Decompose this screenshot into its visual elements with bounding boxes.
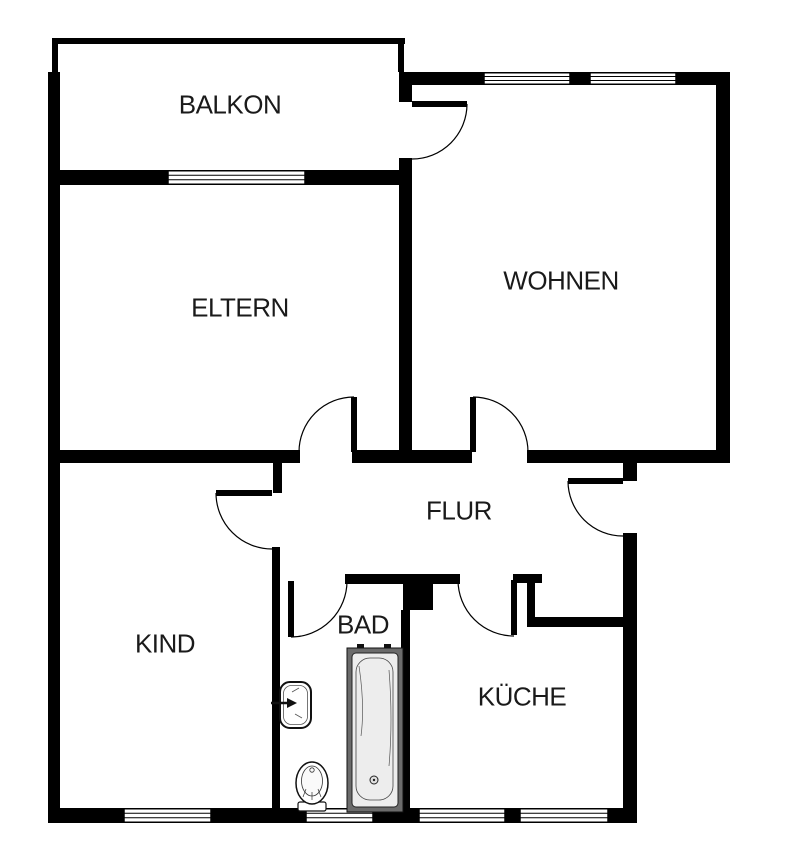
wall-duct-block [403,574,433,610]
window-frame [484,73,570,85]
wall-balcony-parapet-left [52,44,58,72]
door-entry-door [568,481,623,536]
door-swing-arc [299,397,354,452]
door-wohnen-door [473,397,528,452]
door-swing-arc [291,581,347,637]
wall-balcony-inner-wall-west [48,170,168,185]
door-bad-door [291,581,347,637]
toilet-icon [296,762,328,811]
wall-outer-wall-east [623,533,637,823]
door-swing-arc [412,104,467,159]
toilet-bowl [302,766,323,796]
wall-bottom-wall-b [211,808,306,823]
wall-bottom-wall-d [505,808,520,823]
wall-outer-wall-right [716,72,730,463]
wall-flur-north-wall-west [60,450,300,463]
wall-kueche-top-stub [513,574,542,583]
window-frame [419,809,505,823]
window-kueche-window-right [520,809,608,823]
floor-plan-canvas [0,0,790,863]
wall-bottom-wall-e [608,808,637,823]
window-frame [520,809,608,823]
bathtub-icon [347,644,403,812]
window-wohnen-window-left [484,73,570,85]
door-swing-arc [473,397,528,452]
window-kind-window [124,809,211,823]
door-swing-arc [568,481,623,536]
wall-kind-door-stub [273,450,282,493]
floor-plan: BALKONELTERNWOHNENFLURKINDBADKÜCHE [0,0,790,863]
wall-bad-top-wall-west [345,574,403,584]
door-swing-arc [216,493,272,549]
wall-bottom-wall-a [48,808,124,823]
window-eltern-window [168,171,305,185]
wall-balcony-inner-wall-east [305,170,411,185]
window-wohnen-window-right [590,73,676,85]
wall-kueche-top-wall [527,617,623,627]
wall-wohnen-top-wall-pier [570,72,590,85]
wall-flur-north-wall-mid [352,450,472,463]
door-kind-door [216,493,272,549]
door-kueche-door [458,580,514,636]
wall-balcony-parapet-top [52,38,405,44]
wall-eltern-wohnen-wall-top [399,72,412,102]
wall-balcony-parapet-right [398,44,404,72]
window-frame [590,73,676,85]
door-swing-arc [458,580,514,636]
wall-wohnen-top-wall-a [403,72,484,85]
wall-bad-top-wall-east [433,574,460,584]
wall-entry-wall-block [623,450,637,481]
window-frame [124,809,211,823]
door-eltern-door [299,397,354,452]
window-frame [168,171,305,185]
wall-eltern-wohnen-wall [399,158,412,463]
window-kueche-window-left [419,809,505,823]
bathtub-drain-dot [373,779,375,781]
wall-kind-bad-wall [272,547,280,808]
door-balcony-door [412,104,467,159]
